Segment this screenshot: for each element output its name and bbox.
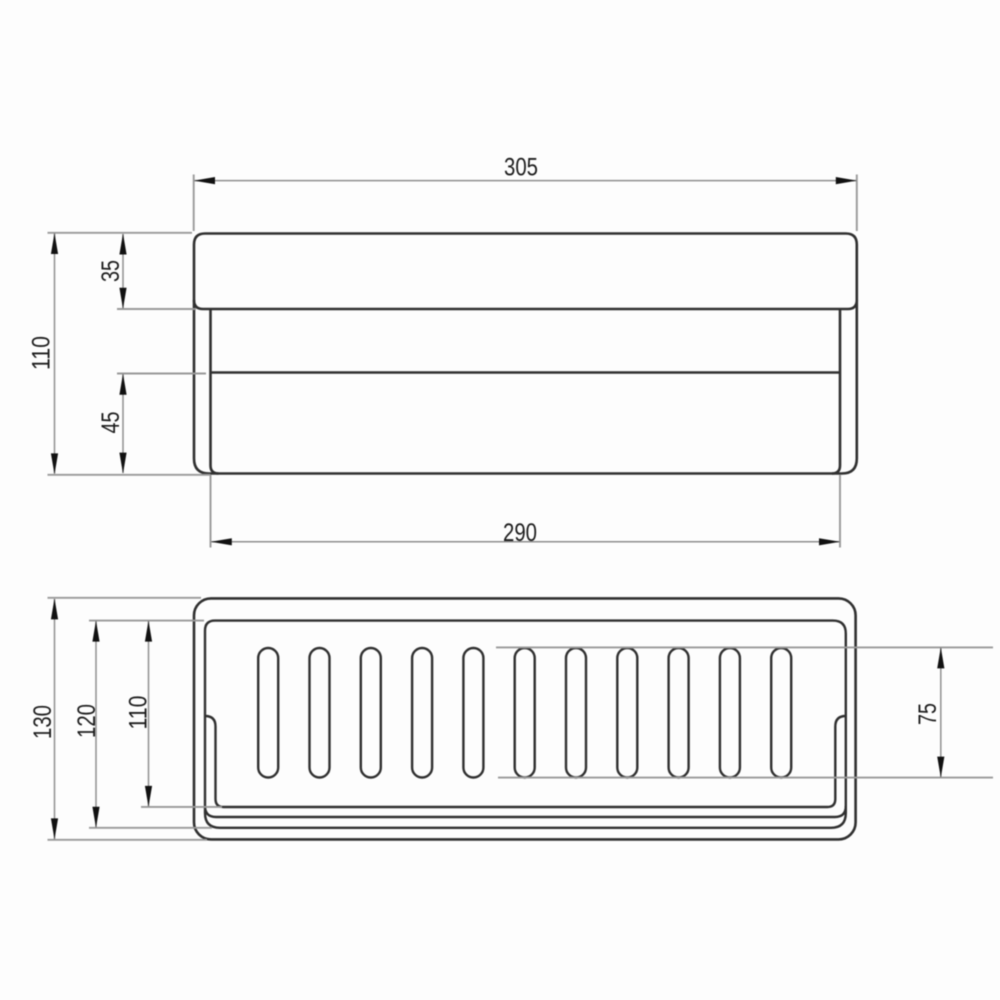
svg-text:290: 290 — [503, 519, 537, 547]
svg-text:305: 305 — [504, 154, 538, 182]
svg-text:110: 110 — [28, 336, 56, 370]
svg-text:45: 45 — [97, 412, 125, 434]
svg-text:75: 75 — [914, 703, 942, 725]
svg-text:120: 120 — [73, 704, 101, 738]
svg-text:130: 130 — [29, 705, 57, 739]
svg-text:110: 110 — [125, 696, 153, 730]
svg-text:35: 35 — [97, 260, 125, 282]
